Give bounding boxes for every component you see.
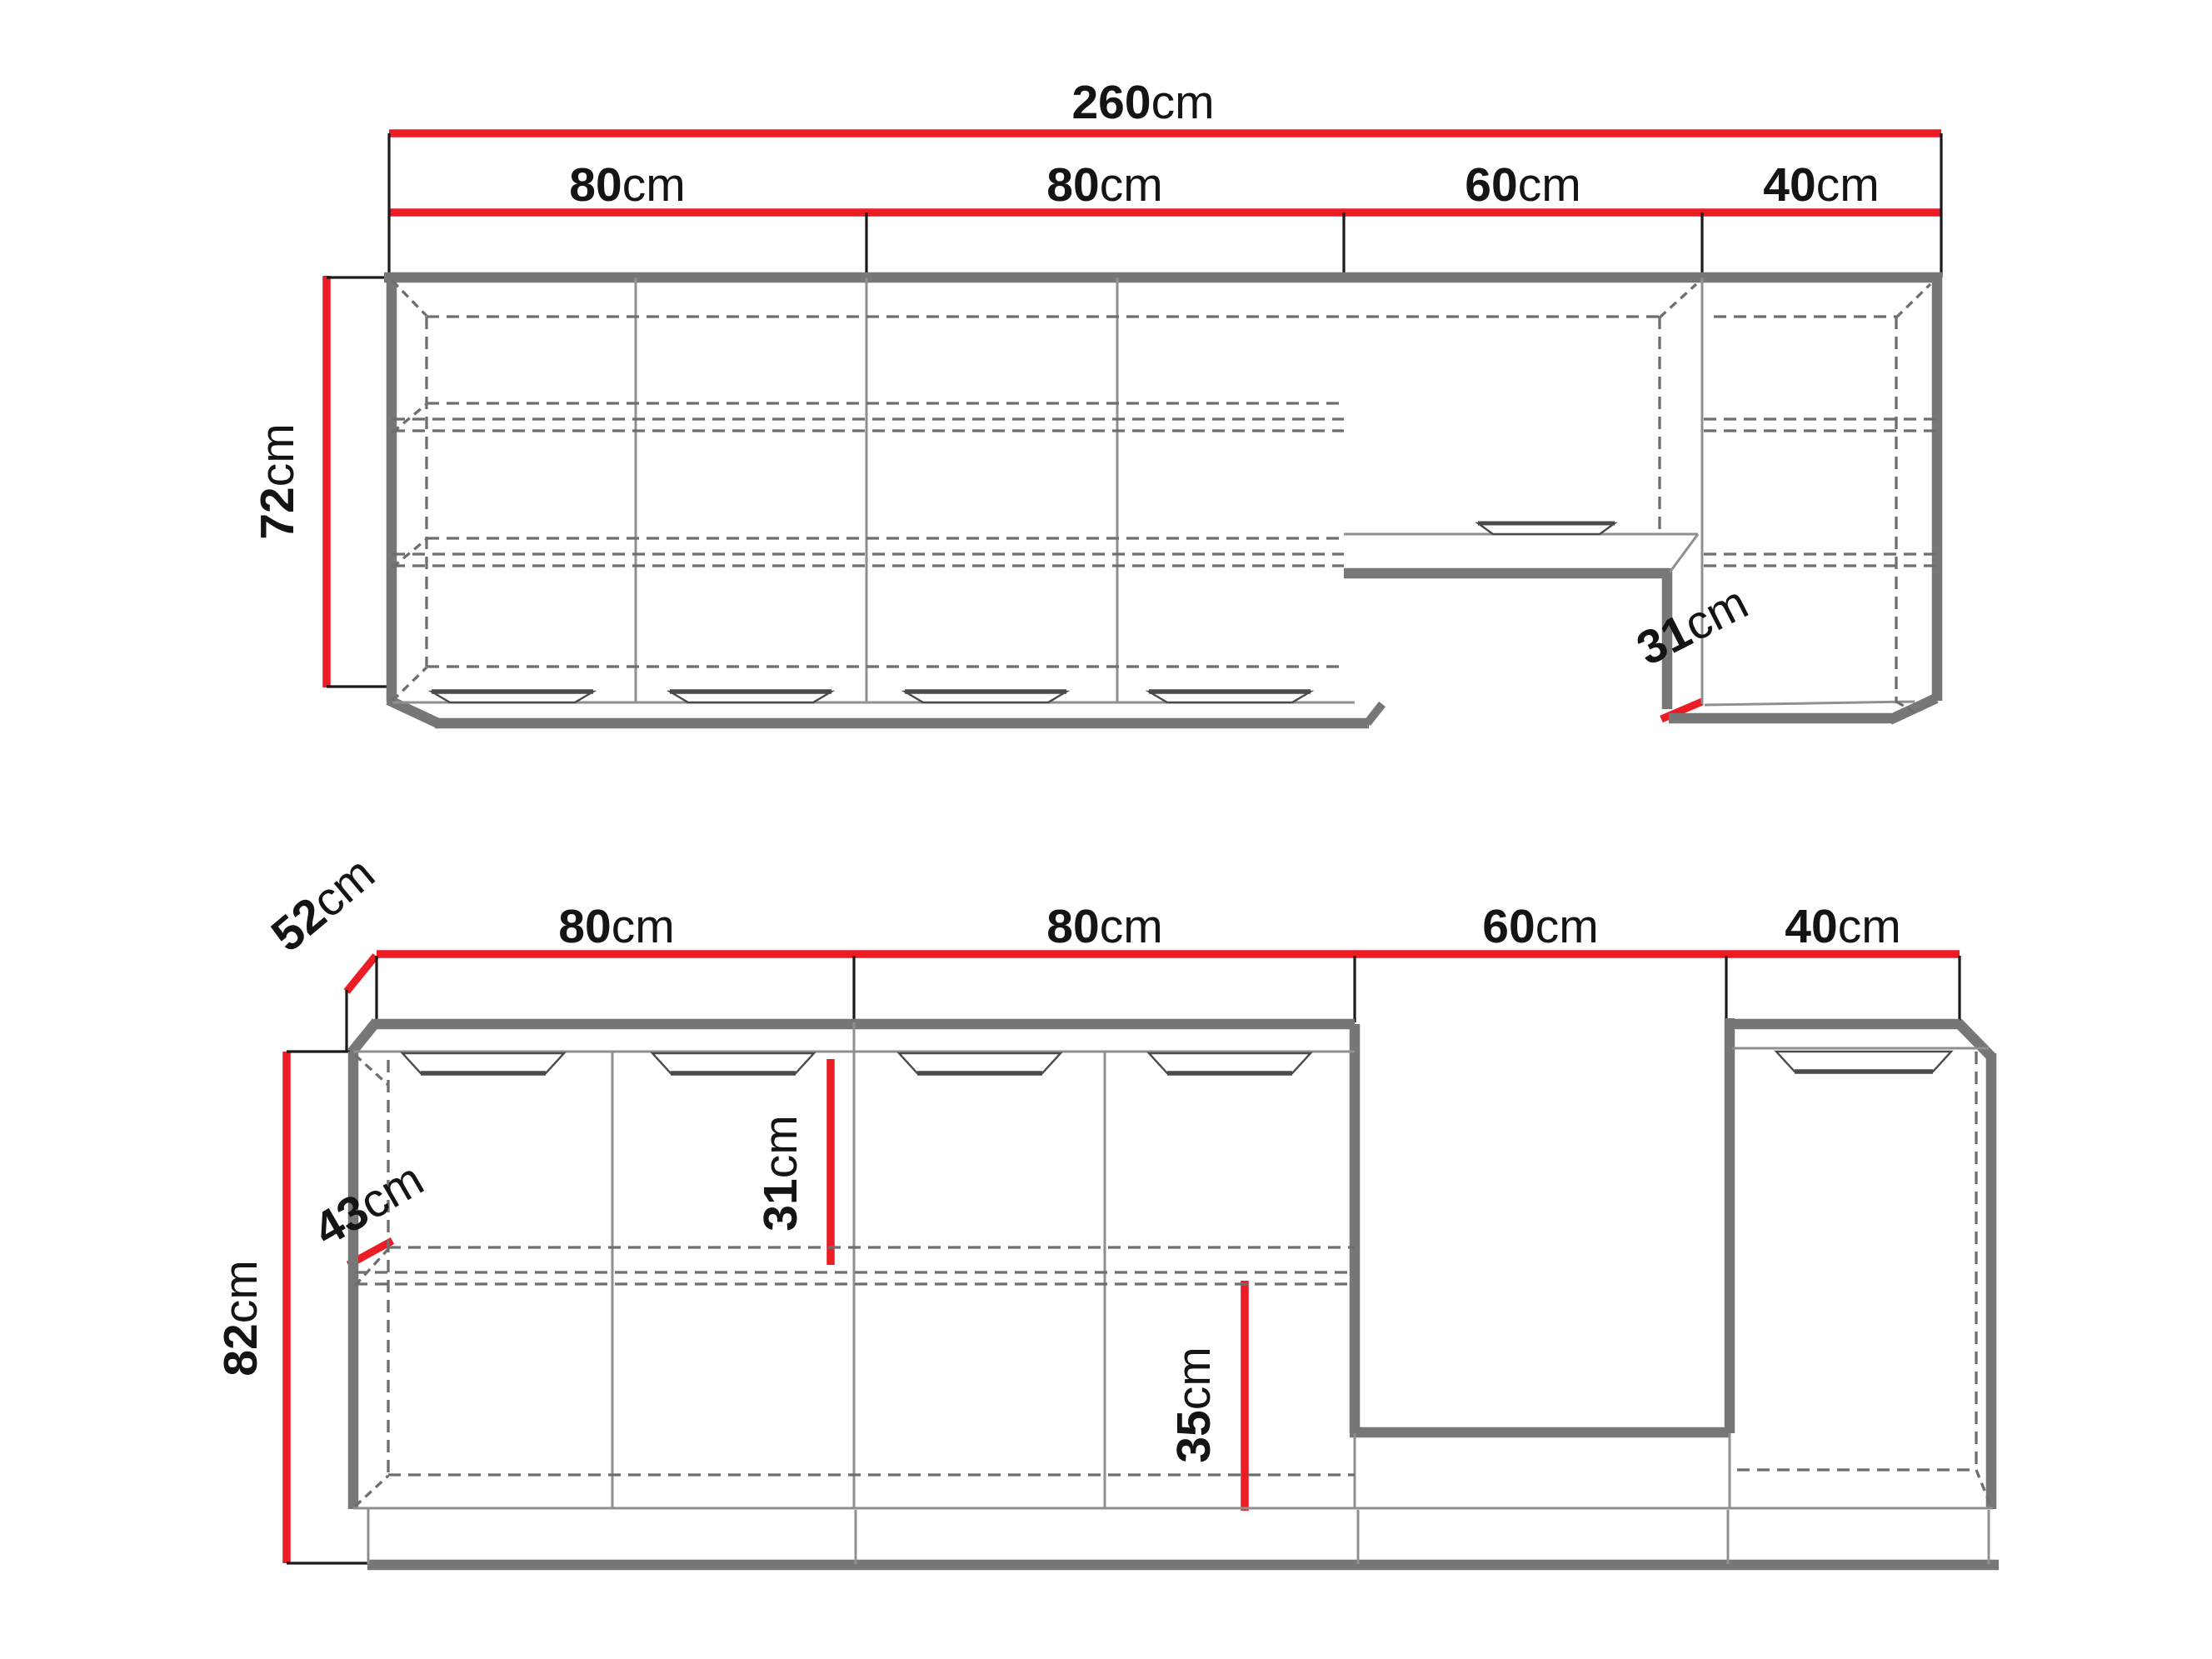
hood-cab-bottom-diagonal xyxy=(1670,534,1698,572)
corner-diag xyxy=(355,1055,388,1085)
dim-unit: cm xyxy=(754,1115,807,1178)
handle xyxy=(899,1053,1061,1073)
dim-label-lower-seg-0: 80cm xyxy=(558,900,674,953)
dim-label-worktop-depth: 52cm xyxy=(262,847,385,962)
handle-cab40 xyxy=(1776,1052,1951,1072)
lower-worktop-depth-dim xyxy=(347,956,376,992)
handle xyxy=(402,1053,564,1073)
dim-label-total-width: 260cm xyxy=(1071,76,1214,129)
dim-value: 260 xyxy=(1071,76,1151,129)
dim-value: 35 xyxy=(1167,1410,1221,1462)
dim-unit: cm xyxy=(1838,900,1901,953)
upper-cabinet-outline xyxy=(384,275,1942,724)
dim-unit: cm xyxy=(1535,900,1599,953)
dim-label-lower-seg-3: 40cm xyxy=(1785,900,1900,953)
drawing-canvas: 260cm 80cm 80cm 60cm 40cm 72cm 31cm xyxy=(0,0,2212,1659)
corner-diag xyxy=(1660,284,1696,317)
dim-unit: cm xyxy=(1816,158,1880,212)
dim-unit: cm xyxy=(622,158,686,212)
dim-unit: cm xyxy=(1100,900,1163,953)
lower-door-lines xyxy=(353,1022,1993,1564)
dim-label-upper-depth: 31cm xyxy=(1629,576,1756,676)
corner-diag xyxy=(392,667,427,701)
dim-unit: cm xyxy=(1518,158,1581,212)
dim-value: 80 xyxy=(569,158,622,212)
dim-label-upper-height: 72cm xyxy=(251,423,304,539)
dim-unit: cm xyxy=(1167,1347,1221,1410)
lower-dimension-lines xyxy=(287,954,1960,1563)
corner-diag xyxy=(392,281,427,316)
dim-label-upper-seg-3: 40cm xyxy=(1763,158,1879,212)
dim-label-lower-seg-2: 60cm xyxy=(1482,900,1598,953)
handle xyxy=(1149,1053,1311,1073)
dim-value: 80 xyxy=(558,900,611,953)
dim-label-body-depth: 43cm xyxy=(305,1152,432,1257)
dim-value: 31 xyxy=(754,1178,807,1231)
dim-value: 60 xyxy=(1465,158,1517,212)
upper-right-cab-bottom xyxy=(1705,702,1915,705)
dim-value: 60 xyxy=(1482,900,1535,953)
dim-label-upper-seg-0: 80cm xyxy=(569,158,685,212)
dim-value: 40 xyxy=(1785,900,1837,953)
lower-door-handles xyxy=(402,1052,1951,1073)
dim-value: 72 xyxy=(251,487,304,539)
lower-elevation: 80cm 80cm 60cm 40cm 52cm 82cm 43cm 31cm … xyxy=(214,847,1999,1565)
dim-label-31: 31cm xyxy=(754,1115,807,1231)
upper-elevation: 260cm 80cm 80cm 60cm 40cm 72cm 31cm xyxy=(251,76,1942,724)
dim-label-35: 35cm xyxy=(1167,1347,1221,1462)
dim-unit: cm xyxy=(1151,76,1215,129)
worktop-left-chamfer xyxy=(352,1022,377,1052)
dim-label-upper-seg-2: 60cm xyxy=(1465,158,1580,212)
upper-bottom-band-chamfer xyxy=(1367,704,1382,723)
corner-diag xyxy=(1896,284,1930,317)
dim-unit: cm xyxy=(251,423,304,487)
kitchen-dimension-drawing: 260cm 80cm 80cm 60cm 40cm 72cm 31cm xyxy=(0,0,2212,1659)
dim-unit: cm xyxy=(214,1260,267,1323)
corner-diag xyxy=(355,1476,388,1507)
dim-unit: cm xyxy=(1100,158,1163,212)
upper-door-handles xyxy=(432,523,1615,702)
dim-label-lower-height: 82cm xyxy=(214,1260,267,1376)
handle xyxy=(652,1053,814,1073)
dim-label-lower-seg-1: 80cm xyxy=(1046,900,1162,953)
dim-value: 40 xyxy=(1763,158,1815,212)
lower-cabinet-outline xyxy=(352,1018,1999,1565)
dim-value: 80 xyxy=(1046,900,1099,953)
dim-label-upper-seg-1: 80cm xyxy=(1046,158,1162,212)
lower-extension-lines xyxy=(287,956,1960,1563)
dim-value: 82 xyxy=(214,1323,267,1376)
dim-value: 80 xyxy=(1046,158,1099,212)
dim-unit: cm xyxy=(612,900,675,953)
